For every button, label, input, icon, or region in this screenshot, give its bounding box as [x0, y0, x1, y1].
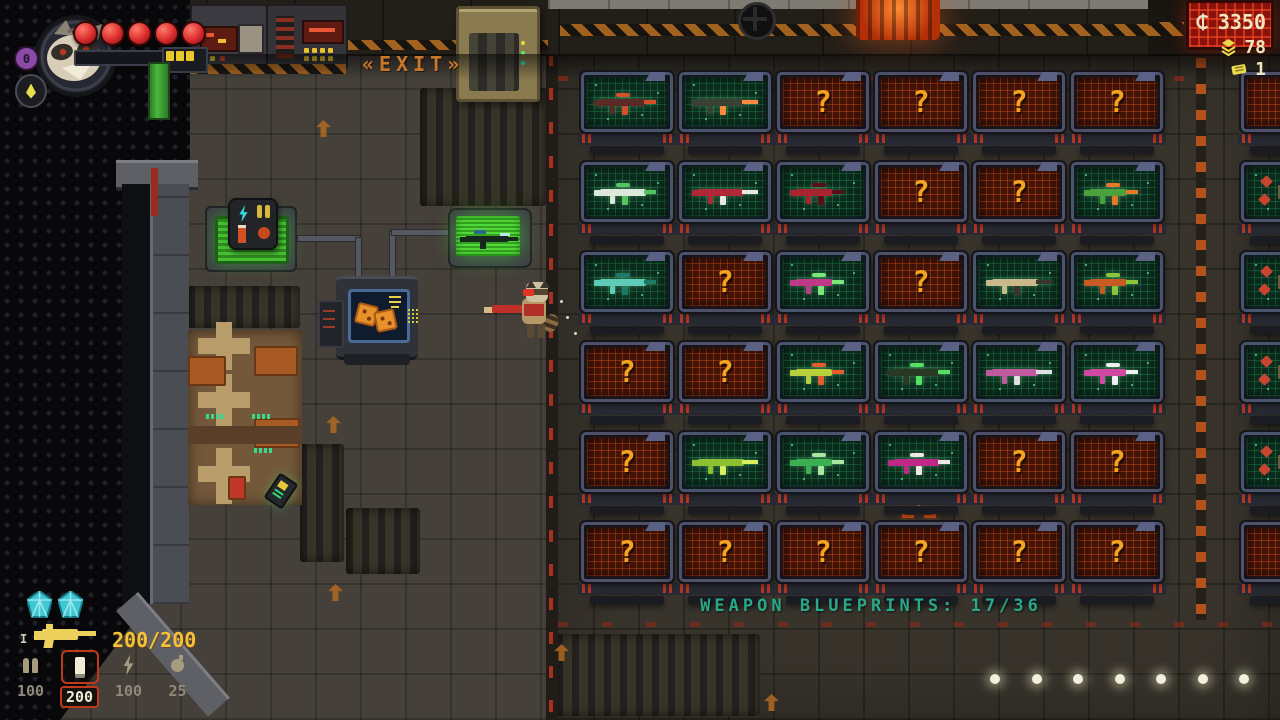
- weapon-slot-marker: I: [20, 632, 27, 646]
- droplet-icon: [25, 84, 37, 99]
- battery-cell: [166, 51, 174, 61]
- battery-cell: [176, 51, 184, 61]
- bullets-icon: [14, 650, 48, 680]
- ammo-count: 100: [13, 682, 48, 700]
- weapon-ammo-readout: 200/200: [112, 628, 196, 652]
- floor-light: [1198, 674, 1208, 684]
- floor-light: [990, 674, 1000, 684]
- health-orb: [181, 21, 206, 46]
- ammo-count: 200: [60, 686, 99, 708]
- health-orbs: [73, 21, 206, 46]
- shells-icon: [61, 650, 99, 684]
- health-orb: [154, 21, 179, 46]
- ammo-slot-energy[interactable]: 100: [106, 650, 151, 708]
- health-orb: [73, 21, 98, 46]
- battery-cell: [186, 51, 194, 61]
- ammo-slot-shells[interactable]: 200: [57, 650, 102, 708]
- credits-icon: [1195, 13, 1211, 31]
- explosives-icon: [161, 650, 195, 680]
- fuel-badge: [15, 74, 47, 108]
- ammo-slot-explosives[interactable]: 25: [155, 650, 200, 708]
- floor-lights-row: [0, 0, 1280, 720]
- health-orb: [100, 21, 125, 46]
- credits-readout: 3350: [1195, 10, 1266, 34]
- armor-gem-icon: [58, 591, 83, 618]
- armor-gem-icon: [27, 591, 52, 618]
- ticket-icon: [1230, 62, 1248, 78]
- floor-light: [1115, 674, 1125, 684]
- health-orb: [127, 21, 152, 46]
- tickets-readout: 1: [1230, 59, 1266, 80]
- gem-stack-icon: [1220, 39, 1237, 56]
- floor-light: [1073, 674, 1083, 684]
- ammo-slot-bar: 10020010025: [8, 650, 200, 708]
- floor-light: [1156, 674, 1166, 684]
- gems-readout: 78: [1220, 37, 1266, 58]
- armor-gems: [27, 591, 83, 618]
- floor-light: [1239, 674, 1249, 684]
- ammo-count: 100: [111, 682, 146, 700]
- green-pipe: [148, 62, 170, 120]
- ammo-slot-bullets[interactable]: 100: [8, 650, 53, 708]
- game-viewport[interactable]: «EXIT» ??????????????????? ?? WEAPON BLU…: [0, 0, 1280, 720]
- ammo-count: 25: [164, 682, 190, 700]
- floor-light: [1032, 674, 1042, 684]
- level-badge: 0: [14, 46, 39, 71]
- energy-icon: [112, 650, 146, 680]
